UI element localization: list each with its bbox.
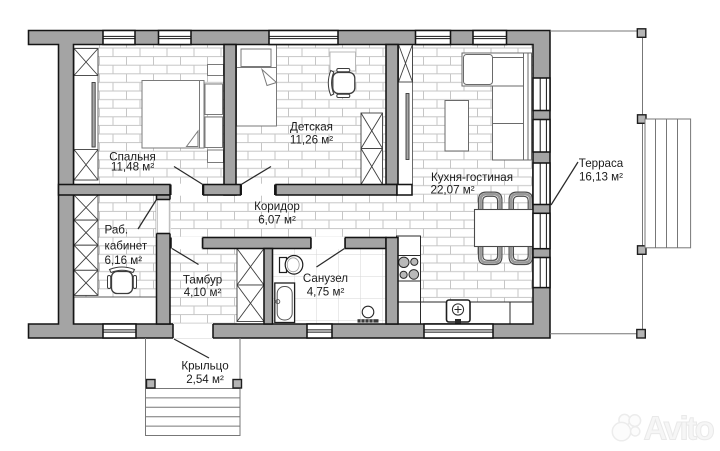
svg-text:Коридор: Коридор (254, 200, 300, 213)
svg-text:Терраса: Терраса (579, 157, 624, 170)
svg-text:Avito: Avito (644, 410, 714, 447)
svg-text:6,16 м²: 6,16 м² (105, 254, 143, 267)
svg-text:Кухня-гостиная: Кухня-гостиная (431, 171, 513, 184)
svg-text:Детская: Детская (290, 121, 333, 134)
svg-text:4,75 м²: 4,75 м² (307, 286, 345, 299)
svg-text:кабинет: кабинет (105, 240, 148, 253)
svg-text:16,13 м²: 16,13 м² (579, 171, 623, 184)
svg-text:6,07 м²: 6,07 м² (258, 214, 296, 227)
svg-text:Тамбур: Тамбур (183, 274, 222, 287)
svg-text:Санузел: Санузел (303, 272, 348, 285)
svg-text:Раб.: Раб. (105, 224, 129, 237)
svg-text:11,48 м²: 11,48 м² (111, 161, 154, 174)
svg-text:Крыльцо: Крыльцо (181, 360, 228, 373)
svg-text:11,26 м²: 11,26 м² (290, 134, 333, 147)
svg-text:22,07 м²: 22,07 м² (431, 184, 475, 197)
svg-text:2,54 м²: 2,54 м² (186, 373, 224, 386)
svg-text:4,10 м²: 4,10 м² (184, 286, 222, 299)
